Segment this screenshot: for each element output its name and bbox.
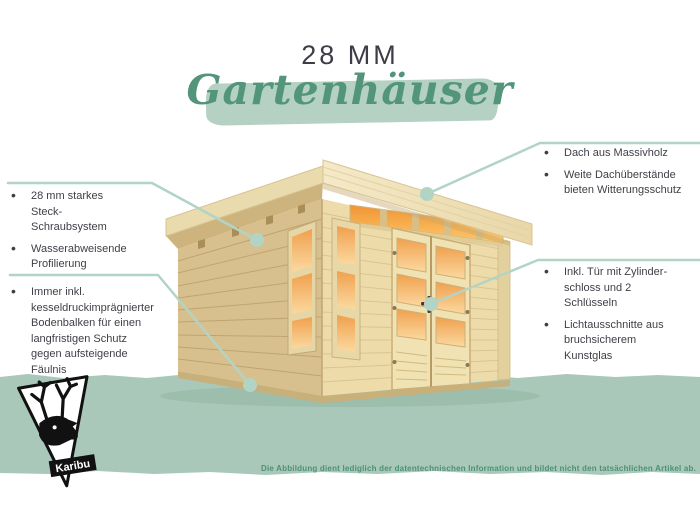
feature-item: Wasserabweisende Profilierung: [10, 242, 124, 273]
karibu-logo: Karibu: [12, 374, 112, 499]
infographic-canvas: 28 MM Gartenhäuser Die Abbildung dient l…: [0, 0, 700, 525]
feature-list-right-top: Dach aus Massivholz Weite Dachüberstände…: [543, 146, 683, 205]
feature-list-left-bottom: Immer inkl. kesseldruckim­prägnierter Bo…: [10, 285, 156, 384]
callout-dot-base: [243, 378, 257, 392]
feature-item: 28 mm starkes Steck-Schraubsystem: [10, 189, 124, 236]
feature-item: Weite Dachüberstände bieten Witterungssc…: [543, 168, 683, 199]
feature-list-left-top: 28 mm starkes Steck-Schraubsystem Wasser…: [10, 189, 124, 279]
feature-item: Lichtausschnitte aus bruchsicherem Kunst…: [543, 318, 675, 365]
feature-item: Inkl. Tür mit Zylinder­schloss und 2 Sch…: [543, 265, 675, 312]
callout-dot-roof: [420, 187, 434, 201]
callout-dot-wall: [250, 233, 264, 247]
callout-dot-door: [424, 297, 438, 311]
feature-item: Dach aus Massivholz: [543, 146, 683, 162]
feature-item: Immer inkl. kesseldruckim­prägnierter Bo…: [10, 285, 156, 378]
feature-list-right-middle: Inkl. Tür mit Zylinder­schloss und 2 Sch…: [543, 265, 675, 370]
